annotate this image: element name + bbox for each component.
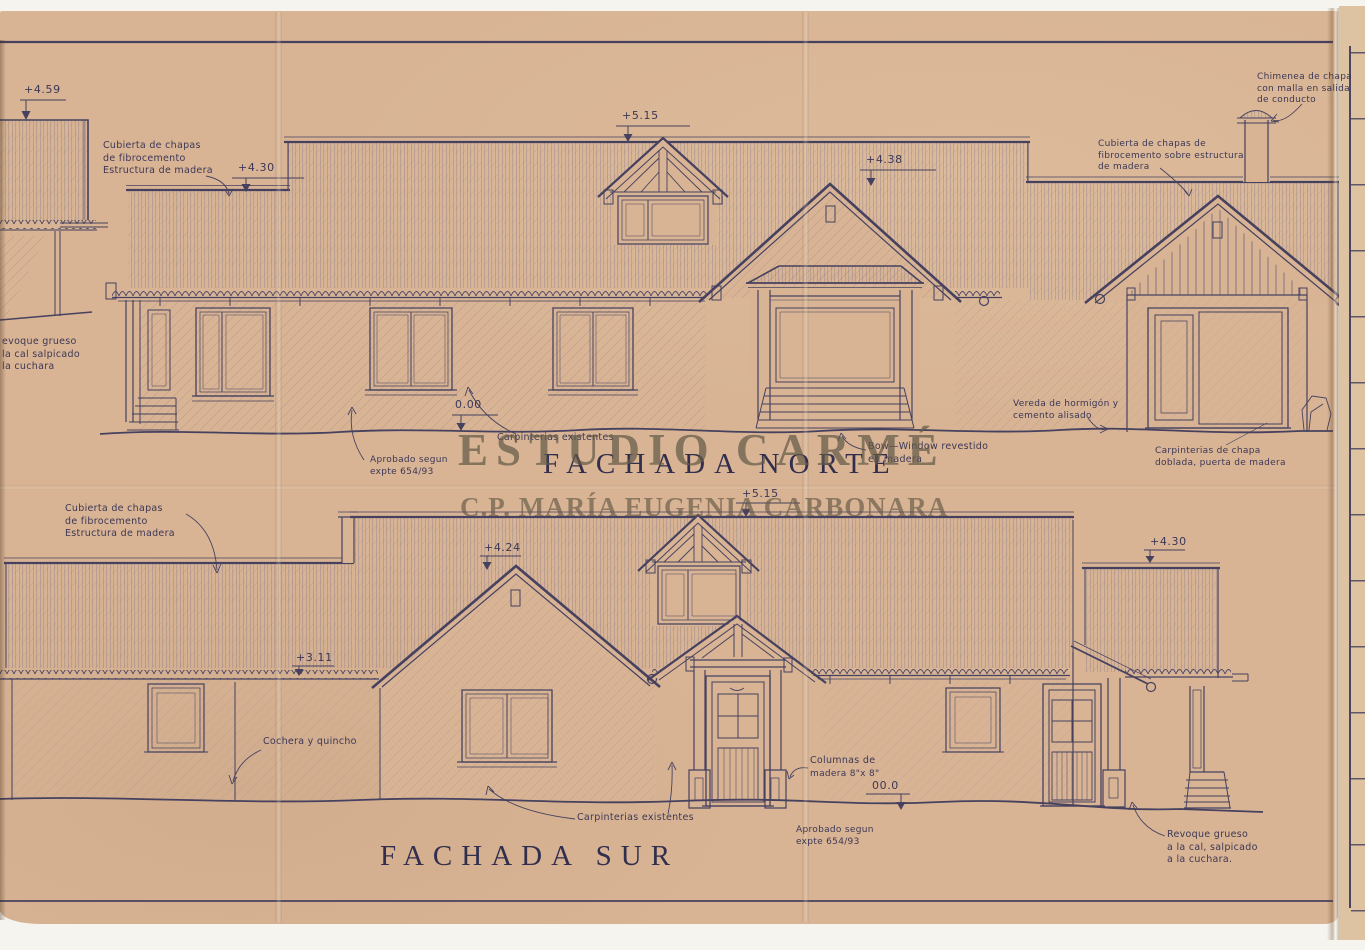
text-line: Revoque grueso <box>1167 829 1258 842</box>
text-line: la cal salpicado <box>2 349 80 362</box>
text-line: Carpinterias existentes <box>577 812 694 825</box>
text-line: a la cal, salpicado <box>1167 842 1258 855</box>
text-line: cemento alisado <box>1013 411 1118 423</box>
text-line: de fibrocemento <box>103 153 213 166</box>
note-approved-south: Aprobado segun expte 654/93 <box>796 825 874 848</box>
dim-north-gable: +4.38 <box>866 153 903 166</box>
dim-north-left-roof: +4.30 <box>238 161 275 174</box>
text-line: Estructura de madera <box>103 165 213 178</box>
text-line: con malla en salida <box>1257 84 1352 96</box>
text-line: Cubierta de chapas de <box>1098 139 1244 151</box>
note-sidewalk: Vereda de hormigón y cemento alisado <box>1013 399 1118 422</box>
text-line: de conducto <box>1257 95 1352 107</box>
horizontal-crease <box>0 485 1338 490</box>
note-joinery-south: Carpinterias existentes <box>577 812 694 825</box>
note-roof-left-south: Cubierta de chapas de fibrocemento Estru… <box>65 503 175 541</box>
text-line: a la cuchara. <box>1167 854 1258 867</box>
text-line: Carpinterias de chapa <box>1155 446 1286 458</box>
text-line: evoque grueso <box>2 336 80 349</box>
text-line: expte 654/93 <box>370 467 448 479</box>
text-line: Cubierta de chapas <box>103 140 213 153</box>
text-line: la cuchara <box>2 361 80 374</box>
adjacent-sheet-cells <box>1351 52 1365 912</box>
note-garage: Cochera y quincho <box>263 736 357 749</box>
watermark-architect: C.P. MARÍA EUGENIA CARBONARA <box>460 492 948 523</box>
title-fachada-sur: FACHADA SUR <box>380 840 679 873</box>
text-line: Vereda de hormigón y <box>1013 399 1118 411</box>
note-render-left-north: evoque grueso la cal salpicado la cuchar… <box>2 336 80 374</box>
text-line: Estructura de madera <box>65 528 175 541</box>
note-roof-left-north: Cubierta de chapas de fibrocemento Estru… <box>103 140 213 178</box>
text-line: Aprobado segun <box>370 455 448 467</box>
text-line: fibrocemento sobre estructura <box>1098 151 1244 163</box>
note-chimney: Chimenea de chapa con malla en salida de… <box>1257 72 1352 107</box>
dim-south-ground: 00.0 <box>872 779 899 792</box>
adjacent-sheet-edge <box>1339 6 1365 940</box>
watermark-studio: ESTUDIO CARMÉ <box>458 424 946 476</box>
text-line: Cochera y quincho <box>263 736 357 749</box>
text-line: Columnas de <box>810 755 879 768</box>
text-line: doblada, puerta de madera <box>1155 458 1286 470</box>
note-approved-north: Aprobado segun expte 654/93 <box>370 455 448 478</box>
dim-south-eave: +3.11 <box>296 651 333 664</box>
text-line: de madera <box>1098 162 1244 174</box>
fold-edge-shadow <box>1327 8 1339 940</box>
text-line: de fibrocemento <box>65 516 175 529</box>
scanned-architectural-sheet: +4.59 +4.30 +5.15 +4.38 0.00 Cubierta de… <box>0 0 1365 950</box>
fold-crease <box>275 12 282 922</box>
dim-north-ridge: +5.15 <box>622 109 659 122</box>
dim-north-annex: +4.59 <box>24 83 61 96</box>
text-line: expte 654/93 <box>796 837 874 849</box>
dim-south-gable: +4.24 <box>484 541 521 554</box>
text-line: madera 8"x 8" <box>810 768 879 781</box>
paper-left-edge-shadow <box>0 40 6 920</box>
text-line: Cubierta de chapas <box>65 503 175 516</box>
dim-north-ground: 0.00 <box>455 398 482 411</box>
text-line: Aprobado segun <box>796 825 874 837</box>
dim-south-right-roof: +4.30 <box>1150 535 1187 548</box>
note-columns: Columnas de madera 8"x 8" <box>810 755 879 780</box>
text-line: Chimenea de chapa <box>1257 72 1352 84</box>
note-render-south: Revoque grueso a la cal, salpicado a la … <box>1167 829 1258 867</box>
note-sheet-joinery: Carpinterias de chapa doblada, puerta de… <box>1155 446 1286 469</box>
note-roof-right-north: Cubierta de chapas de fibrocemento sobre… <box>1098 139 1244 174</box>
